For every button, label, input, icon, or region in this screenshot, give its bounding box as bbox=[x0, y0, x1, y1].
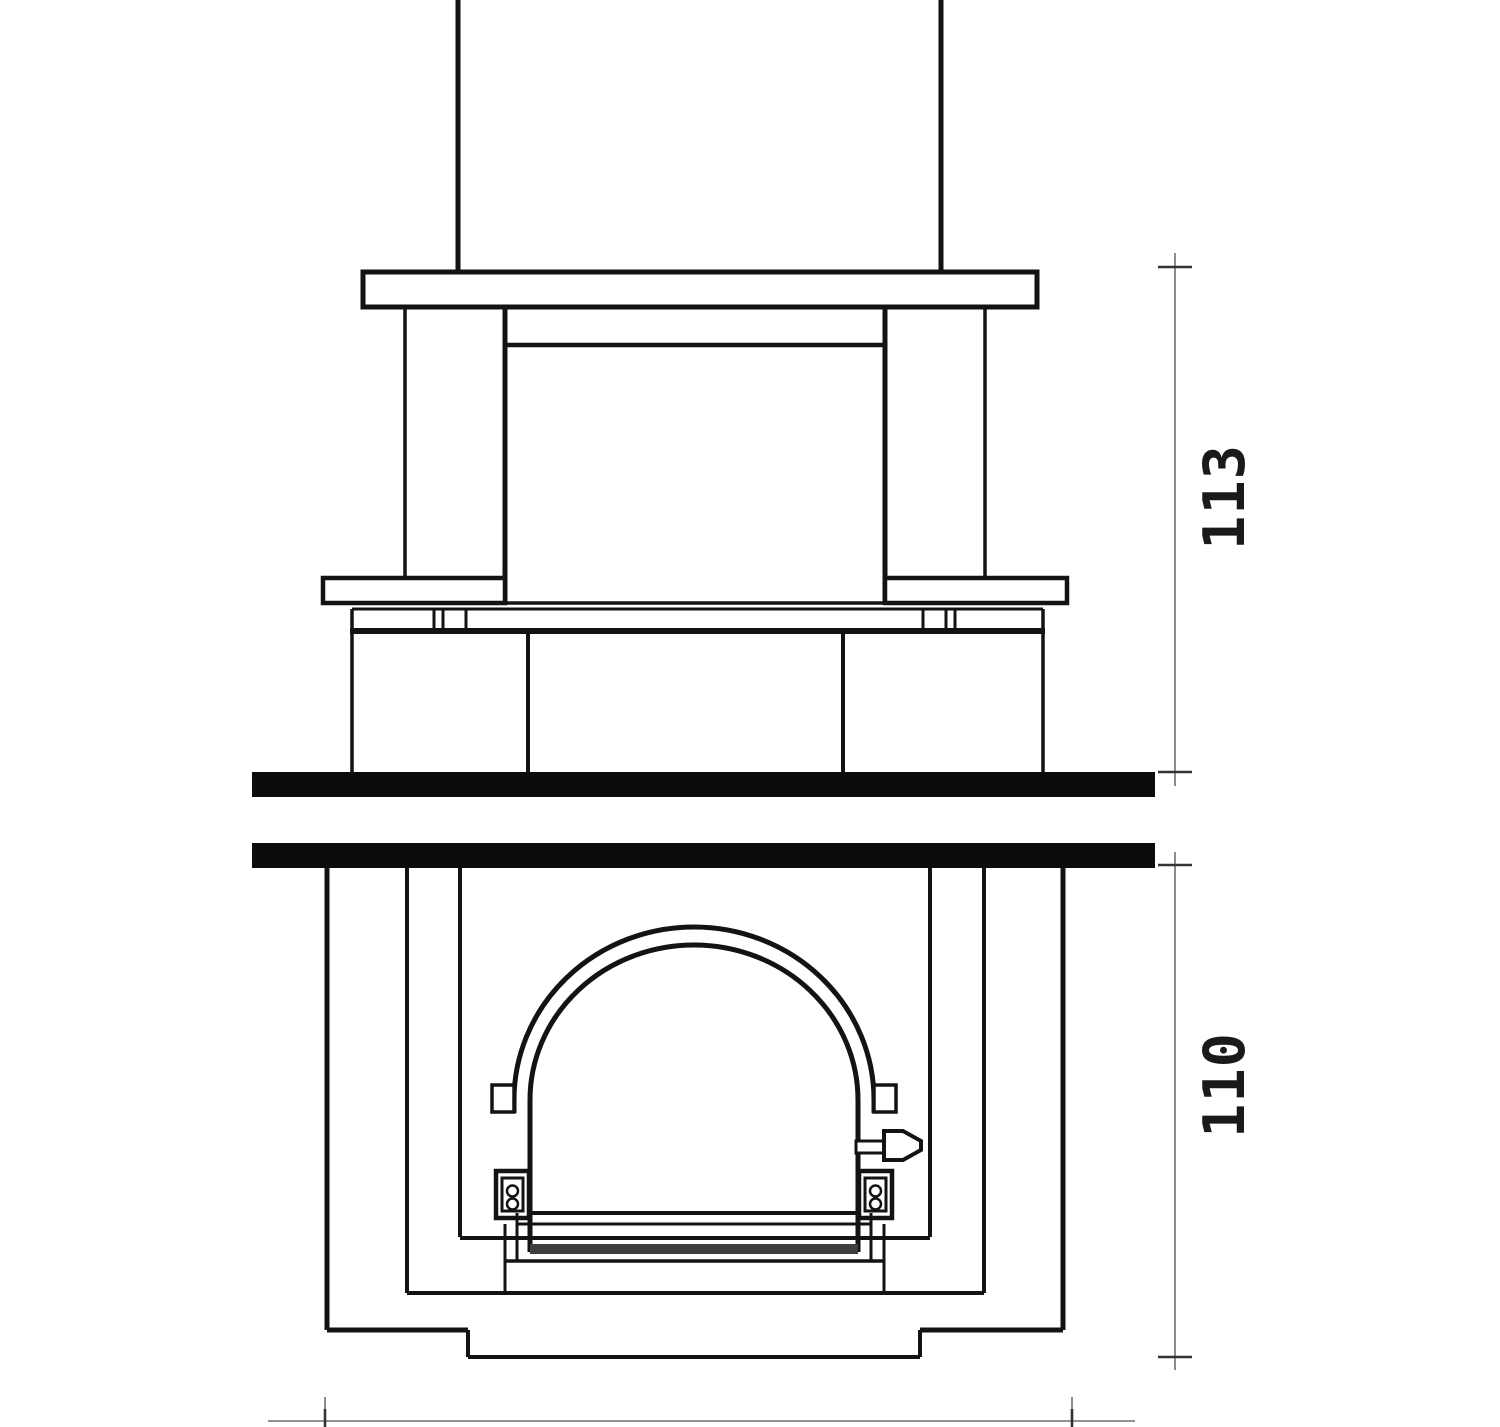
latch-knob bbox=[884, 1131, 921, 1160]
technical-drawing-canvas: 113 110 bbox=[0, 0, 1500, 1427]
fireplace-dimension-drawing: 113 110 bbox=[0, 0, 1500, 1427]
sill-shaded-band bbox=[530, 1244, 858, 1254]
plinth bbox=[468, 1330, 920, 1357]
mantel-shelf-right bbox=[885, 578, 1067, 603]
mantel-shelf-left bbox=[323, 578, 505, 603]
door-pivot-tab-right bbox=[874, 1085, 896, 1112]
door-pivot-tab-left bbox=[492, 1085, 514, 1112]
latch-handle bbox=[856, 1131, 921, 1160]
door-sill bbox=[407, 1213, 984, 1293]
dimension-110: 110 bbox=[1158, 852, 1258, 1370]
latch-stem bbox=[856, 1141, 884, 1153]
cap-slab bbox=[363, 272, 1037, 307]
door-arch-inner-and-sides bbox=[530, 945, 858, 1252]
floor-slab-upper bbox=[252, 772, 1155, 797]
dimension-width-partial bbox=[268, 1397, 1135, 1427]
ceiling-slab-lower bbox=[252, 843, 1155, 868]
upper-view-elevation bbox=[252, 0, 1155, 797]
dimension-label-113: 113 bbox=[1192, 444, 1258, 550]
hinge-block-right bbox=[859, 1171, 892, 1218]
lower-view-elevation bbox=[252, 843, 1155, 1357]
hinge-block-left bbox=[496, 1171, 529, 1218]
dimension-label-110: 110 bbox=[1192, 1032, 1258, 1138]
door-arch-outer bbox=[514, 927, 874, 1113]
dimension-113: 113 bbox=[1158, 253, 1258, 786]
vent-gap-stubs bbox=[434, 609, 955, 631]
